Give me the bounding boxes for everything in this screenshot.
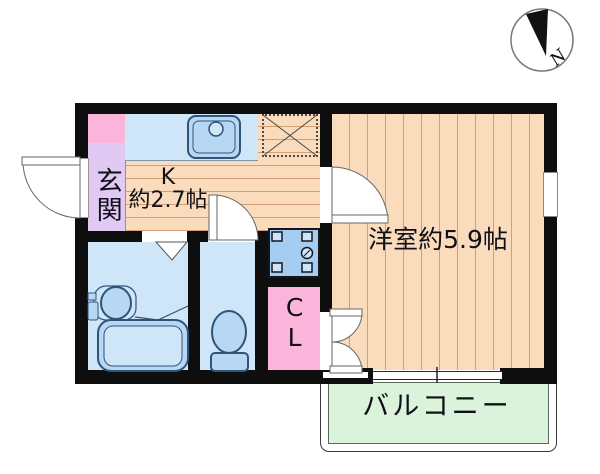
western-room-label: 洋室約5.9帖 <box>332 227 544 253</box>
closet-double-door <box>330 309 362 373</box>
floor-plan: N 玄関 K 約2.7帖 洋室約5.9帖 CL バルコニー <box>0 0 600 474</box>
bathroom-folding-door <box>156 242 187 260</box>
washbasin <box>88 286 188 320</box>
kitchen-label-size: 約2.7帖 <box>112 189 224 212</box>
compass: N <box>511 9 573 71</box>
entrance-door <box>22 157 80 218</box>
room-door <box>332 167 388 223</box>
kitchen-label-abbrev: K <box>120 166 216 189</box>
balcony-label: バルコニー <box>330 393 544 421</box>
refrigerator-cross-icon <box>263 115 317 156</box>
kitchen-sink <box>188 116 240 158</box>
bathtub <box>98 320 188 371</box>
washing-machine-marks <box>272 232 313 272</box>
toilet <box>211 311 248 371</box>
closet-label: CL <box>272 291 316 355</box>
